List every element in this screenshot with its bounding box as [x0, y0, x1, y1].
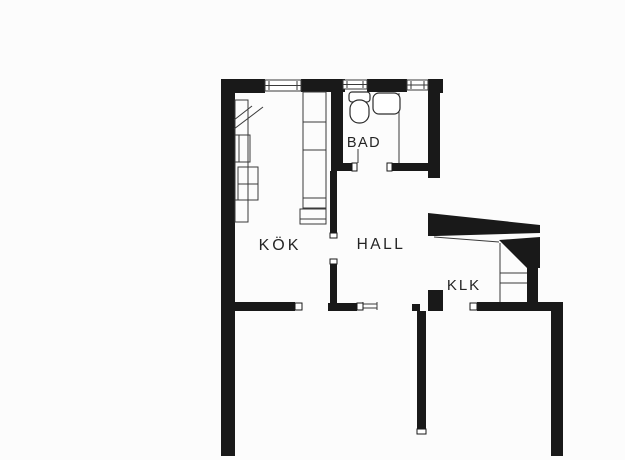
- door-jamb: [330, 259, 337, 264]
- wall-segment: [367, 79, 407, 92]
- wall-segment: [330, 171, 337, 233]
- wall-segment: [343, 163, 352, 171]
- door-jamb: [330, 233, 337, 238]
- wall-segment: [551, 302, 563, 456]
- wall-segment: [301, 79, 345, 92]
- wall-segment: [221, 302, 295, 311]
- wall-segment: [392, 163, 428, 171]
- wall-segment: [328, 303, 357, 311]
- wall-segment: [428, 290, 443, 311]
- window-symbol: [265, 80, 301, 91]
- door-jamb: [295, 303, 302, 310]
- door-jamb: [470, 303, 477, 310]
- toilet-bowl-icon: [350, 100, 369, 123]
- door-jamb: [417, 429, 426, 434]
- wall-segment: [428, 92, 440, 178]
- window-symbol: [407, 80, 428, 90]
- door-jamb: [352, 163, 357, 171]
- wall-segment: [412, 304, 420, 311]
- wall-segment: [428, 79, 443, 93]
- floor-plan-page: KÖKBADHALLKLK: [0, 0, 625, 460]
- wall-segment: [330, 264, 337, 303]
- sink-icon: [373, 93, 400, 114]
- floor-plan: KÖKBADHALLKLK: [0, 0, 625, 460]
- wall-segment: [477, 302, 563, 311]
- room-label-bad: BAD: [347, 135, 381, 151]
- window-symbol: [343, 80, 367, 89]
- room-label-kok: KÖK: [259, 236, 302, 254]
- door-jamb: [387, 163, 392, 171]
- room-label-klk: KLK: [447, 277, 481, 294]
- door-jamb: [357, 303, 363, 310]
- wall-segment: [221, 79, 235, 456]
- wall-segment: [527, 266, 538, 302]
- wall-segment: [331, 92, 343, 171]
- room-label-hall: HALL: [357, 236, 406, 253]
- wall-segment: [417, 311, 426, 430]
